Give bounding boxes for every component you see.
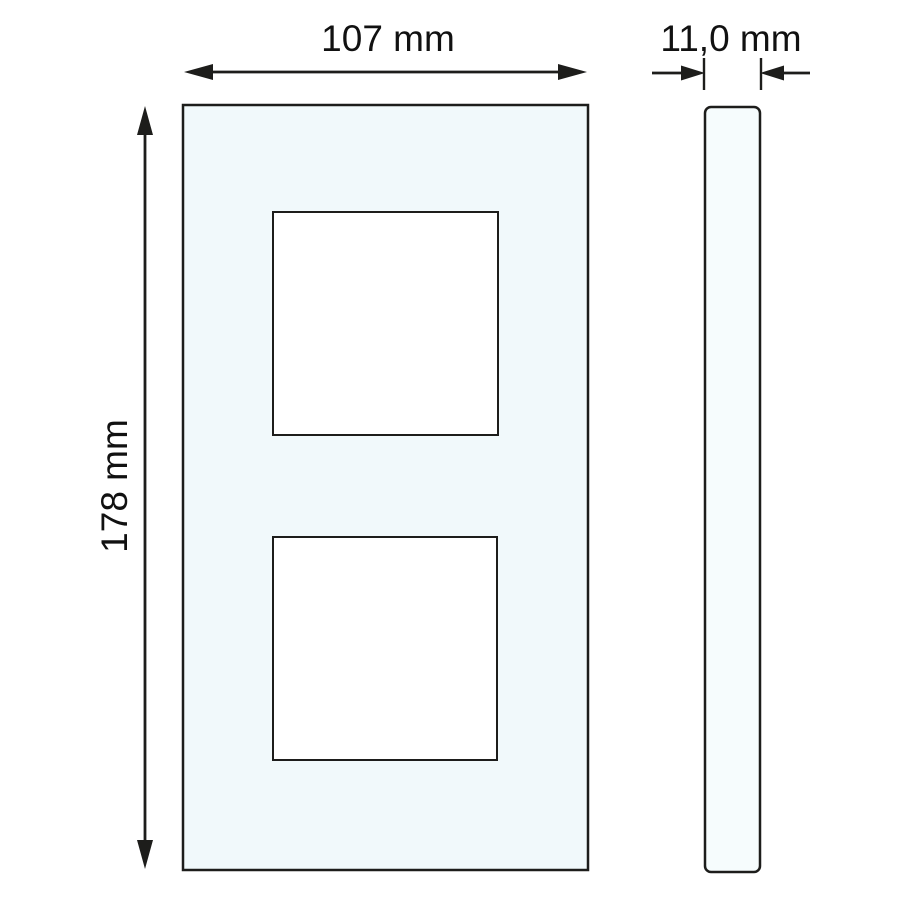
- cutout-top: [273, 212, 498, 435]
- drawing-canvas: 107 mm 178 mm 11,0 mm: [0, 0, 900, 900]
- height-arrowhead-bottom-icon: [137, 840, 153, 869]
- width-dimension-label: 107 mm: [321, 18, 455, 59]
- depth-dimension: 11,0 mm: [652, 18, 810, 90]
- depth-dimension-label: 11,0 mm: [660, 18, 801, 59]
- dimension-drawing-svg: 107 mm 178 mm 11,0 mm: [0, 0, 900, 900]
- side-view-outline: [705, 107, 760, 872]
- height-dimension: 178 mm: [94, 106, 153, 869]
- height-dimension-label: 178 mm: [94, 419, 135, 553]
- depth-arrowhead-right-icon: [760, 66, 784, 81]
- width-arrowhead-left-icon: [184, 64, 213, 80]
- front-view: [183, 105, 588, 870]
- width-arrowhead-right-icon: [558, 64, 587, 80]
- height-arrowhead-top-icon: [137, 106, 153, 135]
- side-view: [705, 107, 760, 872]
- cutout-bottom: [273, 537, 497, 760]
- width-dimension: 107 mm: [184, 18, 587, 80]
- depth-arrowhead-left-icon: [681, 66, 705, 81]
